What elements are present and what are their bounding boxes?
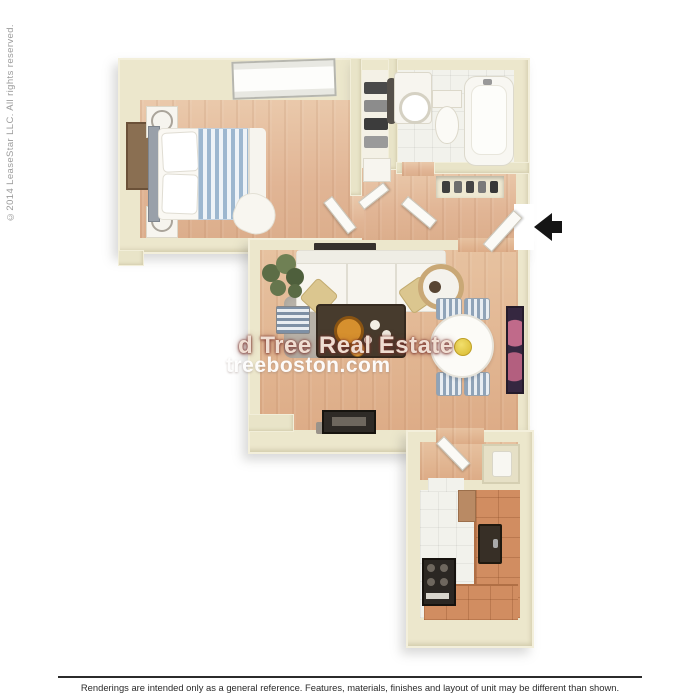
sofa-cushion-divider-2 — [395, 263, 397, 309]
bedroom-closet-partition — [350, 58, 362, 196]
tv — [322, 410, 376, 434]
sofa-back — [297, 251, 445, 264]
niche-item-5 — [490, 181, 498, 193]
bedroom-step-wall — [118, 250, 144, 266]
bathroom-door-opening — [402, 162, 434, 176]
potted-plant — [262, 254, 308, 304]
bathtub-faucet — [483, 79, 492, 85]
closet-shelf-item-3 — [364, 118, 388, 130]
kitchen-sink — [478, 524, 502, 564]
toilet-bowl — [435, 106, 459, 144]
bed-pillow-2 — [161, 173, 198, 214]
niche-item-3 — [466, 181, 474, 193]
front-door-opening — [514, 204, 534, 250]
closet-shelf-item-1 — [364, 82, 388, 94]
kitchen-upper-cabinet — [458, 490, 476, 522]
closet-shelf-item-2 — [364, 100, 388, 112]
bathtub-basin — [471, 85, 507, 155]
living-step-wall — [248, 414, 294, 432]
entry-arrow-icon — [534, 213, 552, 241]
mirror-decor-dot — [429, 281, 441, 293]
utility-closet — [482, 444, 520, 484]
bed-pillow-1 — [161, 131, 199, 173]
entry-arrow-stem — [552, 221, 562, 233]
footer-disclaimer: Renderings are intended only as a genera… — [58, 676, 642, 693]
vanity-sink-bowl — [399, 92, 431, 124]
utility-closet-item — [492, 451, 512, 477]
entry-shelf-niche — [436, 176, 504, 198]
bedroom-window — [231, 58, 336, 100]
niche-item-1 — [442, 181, 450, 193]
range-stove — [422, 558, 456, 606]
white-dish-1 — [370, 320, 380, 330]
copyright-text: ©2014 LeaseStar LLC. All rights reserved… — [5, 12, 16, 222]
kitchen-faucet — [493, 539, 498, 548]
closet-storage-box — [363, 158, 391, 182]
bathtub — [464, 76, 514, 166]
niche-item-4 — [478, 181, 486, 193]
sofa-cushion-divider-1 — [346, 263, 348, 309]
stove-front — [426, 593, 449, 599]
closet-shelf-item-4 — [364, 136, 388, 148]
tv-screen — [332, 417, 366, 426]
table-centerpiece — [454, 338, 472, 356]
niche-item-2 — [454, 181, 462, 193]
watermark-line2: treeboston.com — [226, 354, 391, 378]
striped-ottoman — [276, 306, 310, 334]
dining-wall-artwork — [506, 306, 524, 394]
floor-plan-page: d Tree Real Estate treeboston.com ©2014 … — [0, 0, 700, 700]
